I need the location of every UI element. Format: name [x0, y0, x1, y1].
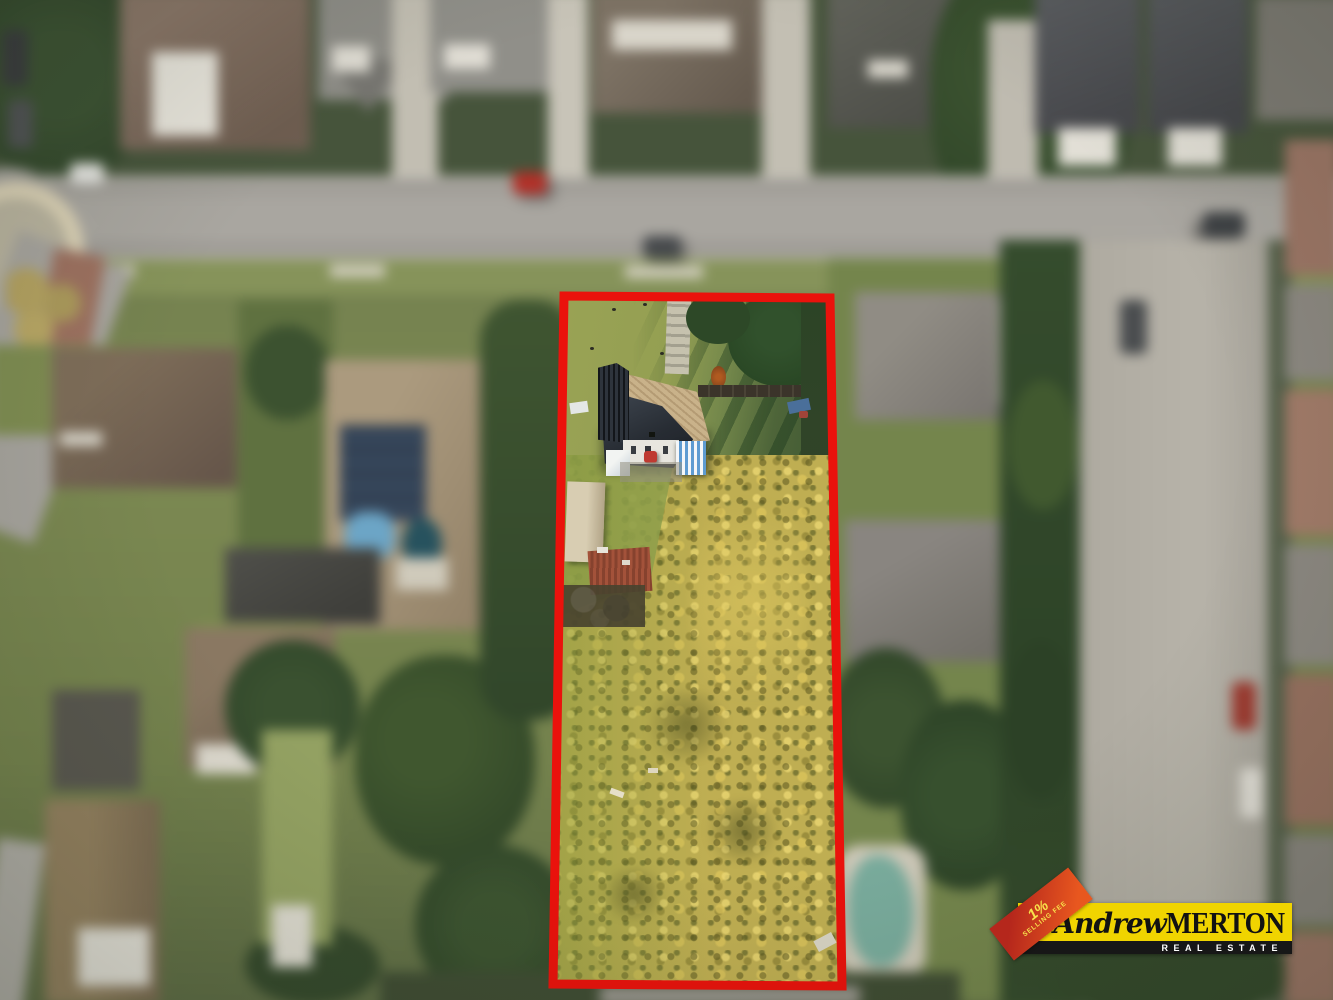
garage-door — [332, 46, 370, 72]
tree — [1005, 640, 1077, 800]
house-roof — [1148, 0, 1248, 133]
townhouse-roof — [1285, 932, 1333, 1000]
townhouse-roof — [1285, 675, 1333, 825]
window — [631, 446, 636, 454]
suv — [1203, 212, 1245, 238]
debris — [648, 768, 658, 773]
chimney — [649, 432, 655, 437]
house-awning — [152, 52, 218, 136]
shed — [272, 905, 312, 967]
house-wall — [868, 60, 908, 78]
parked-car — [1120, 300, 1147, 354]
pool-deck — [396, 558, 448, 590]
townhouse-roof — [1285, 835, 1333, 925]
garage-door — [1168, 128, 1222, 166]
swimming-pool — [848, 855, 914, 967]
collapsed-structure — [563, 585, 645, 627]
driveway — [548, 0, 588, 190]
sunlit-grass — [690, 470, 810, 730]
house-eave — [60, 432, 102, 446]
roof-glint — [597, 547, 608, 553]
parked-car — [2, 30, 28, 86]
logo-name-caps: MERTON — [1166, 905, 1285, 941]
garage-door — [444, 44, 490, 69]
logo-subtitle-bar: REAL ESTATE — [1018, 941, 1292, 954]
roof-glint — [622, 560, 630, 565]
aerial-photo: Andrew MERTON REAL ESTATE 1% SELLING FEE — [0, 0, 1333, 1000]
bird — [660, 352, 664, 355]
house-roof — [855, 292, 1013, 420]
footpath — [330, 265, 385, 277]
house-roof — [592, 0, 762, 113]
dark-car — [643, 236, 681, 258]
house-roof — [52, 348, 237, 488]
parked-car — [8, 100, 33, 148]
tree — [686, 292, 750, 344]
garage-door — [1058, 128, 1116, 166]
kerb — [0, 176, 1333, 179]
grass-shadow — [640, 690, 735, 760]
red-car — [513, 172, 547, 194]
driveway — [988, 20, 1038, 185]
house-roof — [1256, 0, 1333, 120]
footpath — [625, 266, 703, 278]
solar-panels — [340, 425, 426, 521]
white-parked-car — [1240, 768, 1262, 818]
garage-door — [78, 928, 150, 986]
house-wall — [612, 20, 732, 50]
logo-name: Andrew MERTON — [1064, 903, 1290, 943]
tree — [245, 325, 330, 420]
townhouse-roof — [1285, 545, 1333, 665]
tree — [1008, 380, 1078, 510]
agency-logo: Andrew MERTON REAL ESTATE 1% SELLING FEE — [1018, 903, 1292, 954]
house-roof — [1035, 0, 1140, 133]
trailer-load — [799, 411, 808, 418]
logo-subtitle: REAL ESTATE — [1161, 943, 1283, 953]
bird — [590, 347, 594, 350]
rear-lane — [1080, 240, 1280, 1000]
white-car — [70, 163, 104, 184]
window — [663, 446, 668, 454]
townhouse-roof — [1285, 140, 1333, 275]
grass-shadow — [598, 868, 670, 920]
bird — [612, 308, 616, 311]
bird — [643, 303, 647, 306]
pavilion-roof — [225, 548, 380, 624]
driveway — [762, 0, 810, 190]
patio — [620, 462, 682, 482]
townhouse-roof — [1285, 285, 1333, 380]
roof-wing — [598, 363, 629, 443]
red-parked-car — [1232, 682, 1256, 730]
house-roof — [52, 690, 140, 790]
house-roof — [845, 520, 1007, 662]
grass-shadow — [700, 800, 785, 862]
median-bushes — [6, 268, 86, 346]
townhouse-roof — [1285, 390, 1333, 535]
